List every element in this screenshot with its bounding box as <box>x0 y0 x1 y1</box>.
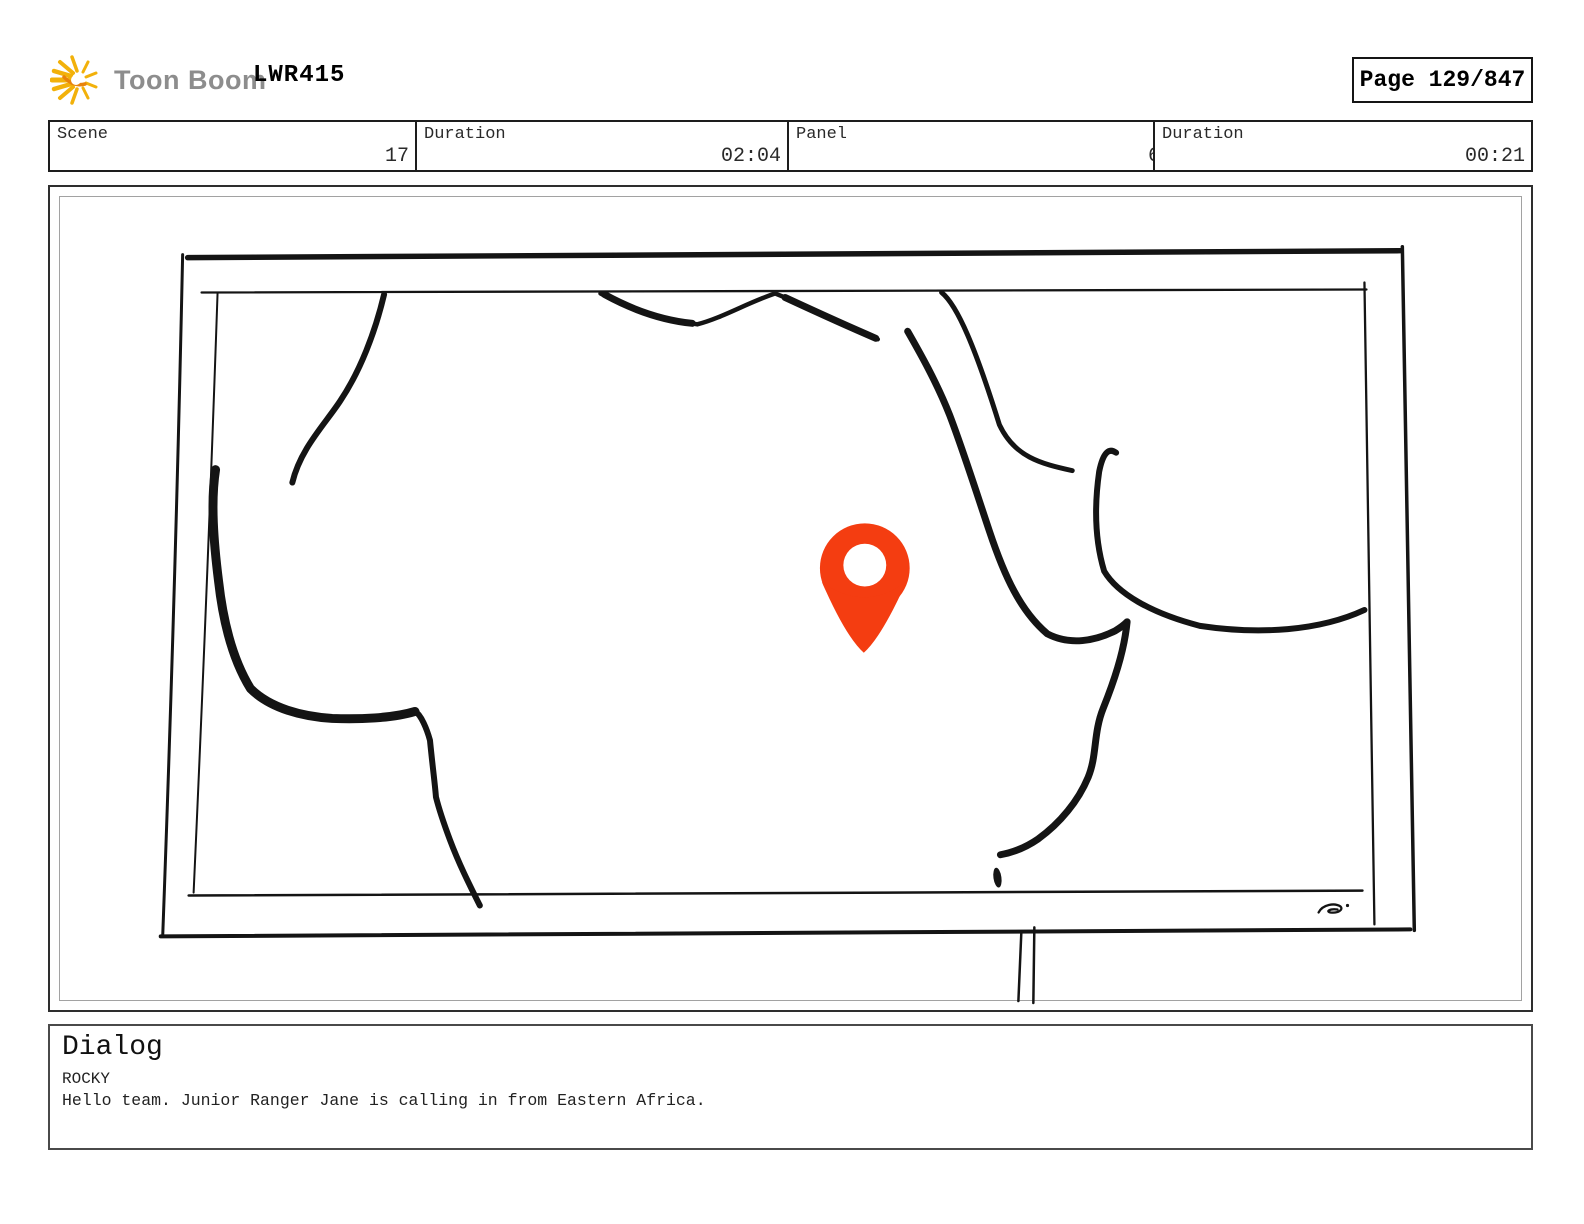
scene-label: Scene <box>57 125 108 144</box>
page-number-label: Page 129/847 <box>1360 67 1526 93</box>
info-cell-panel-duration: Duration 00:21 <box>1153 122 1531 170</box>
toonboom-logo: Toon Boom <box>50 50 266 110</box>
storyboard-panel <box>48 185 1533 1012</box>
toonboom-starburst-icon <box>50 50 110 110</box>
artist-signature <box>1319 904 1350 913</box>
location-pin-icon <box>820 523 910 652</box>
dialog-line-text: Hello team. Junior Ranger Jane is callin… <box>62 1091 1519 1110</box>
panel-sketch <box>50 187 1531 1010</box>
info-cell-panel: Panel 6 <box>787 122 1153 170</box>
info-cell-scene: Scene 17 <box>50 122 415 170</box>
info-cell-scene-duration: Duration 02:04 <box>415 122 787 170</box>
page-number-box: Page 129/847 <box>1352 57 1533 103</box>
panel-label: Panel <box>796 125 847 144</box>
toonboom-brand-text: Toon Boom <box>114 65 266 96</box>
scene-duration-label: Duration <box>424 125 506 144</box>
production-title: LWR415 <box>253 62 345 89</box>
tv-stand-drawing <box>1018 927 1034 1003</box>
africa-map-drawing <box>213 292 1364 905</box>
tv-frame-drawing <box>161 247 1415 937</box>
panel-info-bar: Scene 17 Duration 02:04 Panel 6 Duration… <box>48 120 1533 172</box>
dialog-character-name: ROCKY <box>62 1070 1519 1088</box>
dialog-heading: Dialog <box>62 1032 1519 1063</box>
storyboard-page: Toon Boom LWR415 Page 129/847 Scene 17 D… <box>0 0 1584 1224</box>
dialog-box: Dialog ROCKY Hello team. Junior Ranger J… <box>48 1024 1533 1150</box>
panel-duration-label: Duration <box>1162 125 1244 144</box>
panel-duration-value: 00:21 <box>1465 145 1525 168</box>
scene-duration-value: 02:04 <box>721 145 781 168</box>
scene-value: 17 <box>385 145 409 168</box>
